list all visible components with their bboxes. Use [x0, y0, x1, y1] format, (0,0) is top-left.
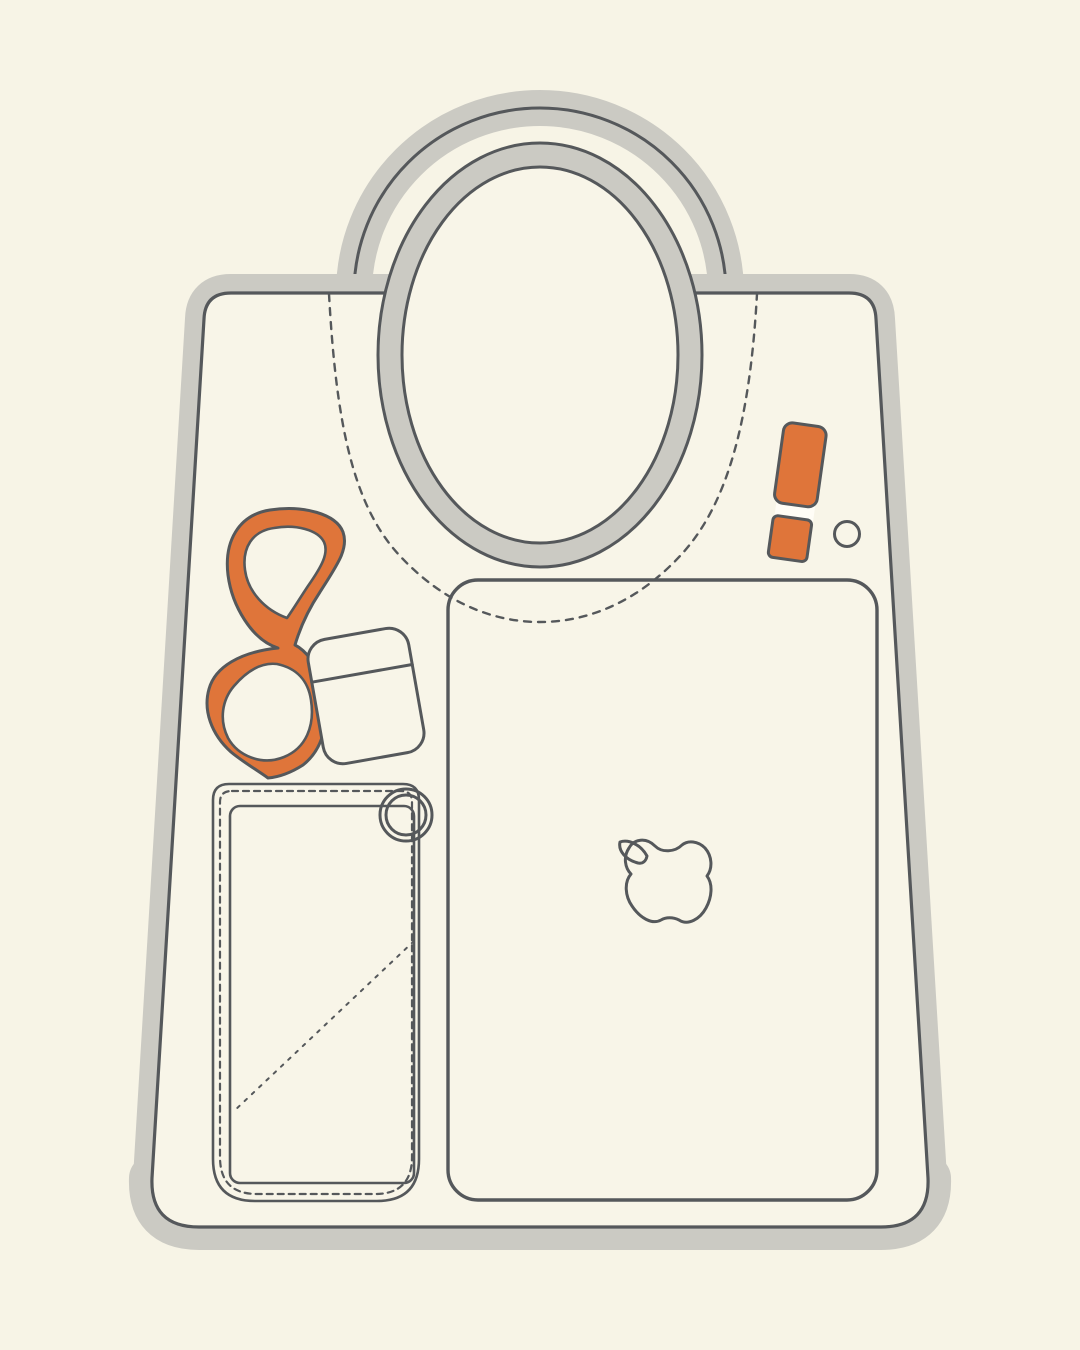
- handle-ring: [378, 143, 702, 567]
- tote-bag-illustration: [0, 0, 1080, 1350]
- earbuds-case-body: [305, 625, 427, 767]
- lipstick-cap: [773, 422, 827, 508]
- earbuds-case: [305, 625, 427, 767]
- lipstick-base: [768, 515, 812, 562]
- handle-ring-inner: [402, 167, 678, 543]
- phone-pocket: [213, 784, 419, 1201]
- pocket-outline: [213, 784, 419, 1201]
